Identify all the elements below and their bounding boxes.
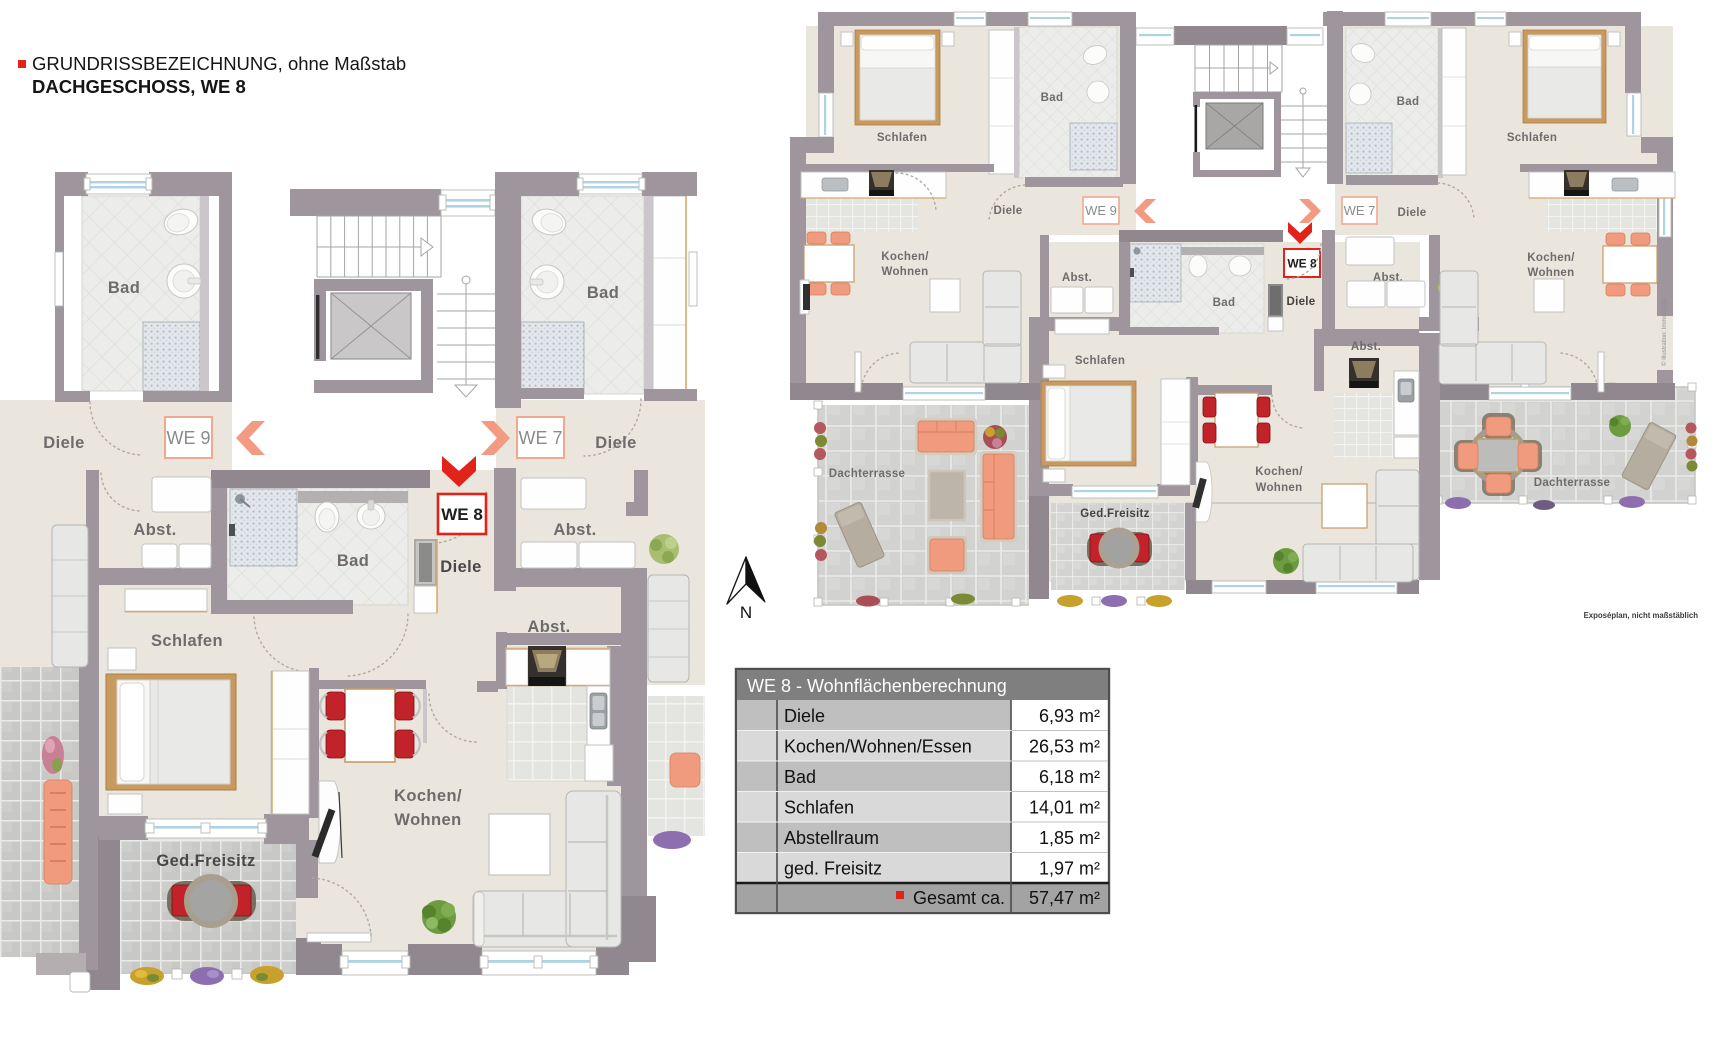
svg-text:Kochen/: Kochen/	[1527, 252, 1575, 264]
svg-text:Abst.: Abst.	[527, 618, 570, 636]
svg-text:N: N	[740, 603, 752, 622]
svg-text:Diele: Diele	[1287, 296, 1316, 308]
svg-text:WE 7: WE 7	[518, 428, 562, 448]
svg-text:WE 9: WE 9	[166, 428, 210, 448]
svg-text:Schlafen: Schlafen	[1075, 355, 1125, 367]
svg-text:6,93 m²: 6,93 m²	[1039, 706, 1100, 726]
svg-text:Kochen/Wohnen/Essen: Kochen/Wohnen/Essen	[784, 737, 972, 757]
svg-text:14,01 m²: 14,01 m²	[1029, 798, 1100, 818]
svg-text:Exposéplan, nicht maßstäblich: Exposéplan, nicht maßstäblich	[1584, 611, 1699, 620]
svg-text:Bad: Bad	[1397, 96, 1420, 108]
svg-text:Kochen/: Kochen/	[881, 251, 929, 263]
svg-text:Bad: Bad	[1041, 92, 1064, 104]
svg-text:Bad: Bad	[587, 284, 619, 302]
svg-text:ged. Freisitz: ged. Freisitz	[784, 859, 882, 879]
svg-text:WE 8: WE 8	[441, 505, 483, 524]
svg-text:Bad: Bad	[784, 767, 816, 787]
svg-text:Diele: Diele	[784, 706, 825, 726]
svg-text:Schlafen: Schlafen	[1507, 132, 1557, 144]
svg-text:Diele: Diele	[1398, 207, 1427, 219]
svg-text:WE 9: WE 9	[1085, 203, 1117, 218]
svg-text:Diele: Diele	[595, 434, 636, 452]
svg-text:Diele: Diele	[994, 205, 1023, 217]
svg-text:Ged.Freisitz: Ged.Freisitz	[156, 852, 255, 870]
svg-text:Ged.Freisitz: Ged.Freisitz	[1080, 508, 1149, 520]
svg-text:Bad: Bad	[337, 552, 369, 570]
svg-text:Kochen/: Kochen/	[1255, 466, 1303, 478]
svg-text:Bad: Bad	[108, 279, 140, 297]
svg-text:DACHGESCHOSS, WE 8: DACHGESCHOSS, WE 8	[32, 76, 246, 97]
svg-text:WE 7: WE 7	[1344, 203, 1376, 218]
svg-text:© Illustration: ImmoGrafik: © Illustration: ImmoGrafik	[1661, 297, 1668, 366]
svg-text:Kochen/: Kochen/	[394, 787, 462, 805]
svg-text:Schlafen: Schlafen	[151, 632, 223, 650]
svg-text:1,85 m²: 1,85 m²	[1039, 828, 1100, 848]
svg-text:Abst.: Abst.	[553, 521, 596, 539]
svg-text:Abst.: Abst.	[1062, 272, 1092, 284]
svg-text:Schlafen: Schlafen	[877, 132, 927, 144]
svg-text:Wohnen: Wohnen	[882, 266, 929, 278]
svg-text:6,18 m²: 6,18 m²	[1039, 767, 1100, 787]
svg-text:Wohnen: Wohnen	[394, 811, 461, 829]
svg-text:Gesamt ca.: Gesamt ca.	[913, 888, 1005, 908]
svg-text:WE 8 - Wohnflächenberechnung: WE 8 - Wohnflächenberechnung	[747, 676, 1007, 696]
svg-text:Diele: Diele	[440, 558, 481, 576]
svg-text:Dachterrasse: Dachterrasse	[1534, 477, 1610, 489]
svg-text:Abst.: Abst.	[133, 521, 176, 539]
svg-text:Abstellraum: Abstellraum	[784, 828, 879, 848]
svg-text:Diele: Diele	[43, 434, 84, 452]
svg-text:Wohnen: Wohnen	[1528, 267, 1575, 279]
svg-text:Schlafen: Schlafen	[784, 798, 854, 818]
svg-text:GRUNDRISSBEZEICHNUNG, ohne Maß: GRUNDRISSBEZEICHNUNG, ohne Maßstab	[32, 53, 406, 74]
svg-text:Dachterrasse: Dachterrasse	[829, 468, 905, 480]
svg-text:Wohnen: Wohnen	[1256, 482, 1303, 494]
svg-text:WE 8: WE 8	[1287, 257, 1317, 271]
svg-text:26,53 m²: 26,53 m²	[1029, 737, 1100, 757]
svg-text:Abst.: Abst.	[1351, 341, 1381, 353]
svg-text:1,97 m²: 1,97 m²	[1039, 859, 1100, 879]
svg-text:Bad: Bad	[1213, 297, 1236, 309]
svg-text:57,47 m²: 57,47 m²	[1029, 888, 1100, 908]
